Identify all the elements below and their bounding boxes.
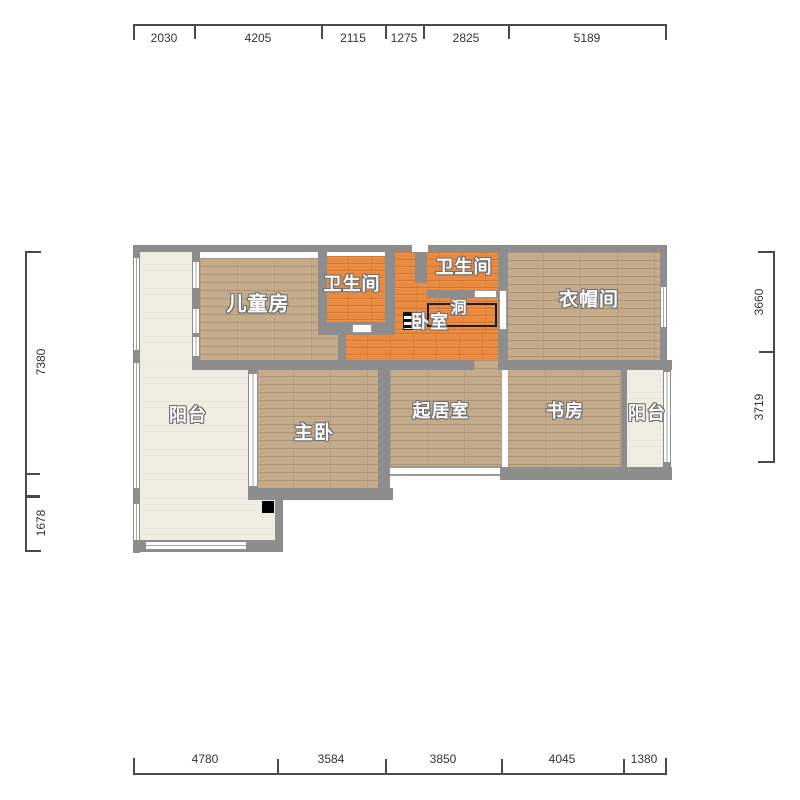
room-balcony-left-floor [140,252,194,370]
dim-bottom-5: 1380 [631,752,658,766]
dim-tick [508,24,510,39]
window-left-1 [134,258,139,350]
wall-master-living [378,360,390,500]
dim-bottom-4: 4045 [549,752,576,766]
window-balcony-children-2 [193,309,199,333]
room-bedroom-corridor-floor [344,333,502,362]
window-living-bottom [390,466,502,476]
room-label-master: 主卧 [294,418,334,445]
window-balcony-children-1 [193,262,199,288]
wall-top-opening [412,245,428,252]
room-balcony-left-floor [140,498,277,542]
window-left-2 [134,363,139,488]
window-balcony-master [249,374,257,486]
dim-tick [665,24,667,40]
window-balcony-bottom [146,542,246,549]
dim-tick [385,24,387,39]
dim-tick [133,24,135,40]
dim-top-4: 1275 [391,31,418,45]
dim-tick [385,759,387,775]
window-left-3 [134,504,139,540]
room-label-bath-left: 卫生间 [324,270,381,296]
wall-bottom-right [500,467,672,480]
wall-children-corridor [338,333,346,362]
dim-top-1: 2030 [151,31,178,45]
dim-tick [277,759,279,775]
dim-tick [25,251,41,253]
dim-top-3: 2115 [340,31,366,45]
dim-left-1: 7380 [34,349,48,376]
wall-study-balcony [621,365,627,470]
wall-bath-left-bedroom [385,252,395,335]
dim-tick [623,759,625,775]
room-label-study: 书房 [546,397,584,423]
dim-tick [321,24,323,39]
dim-bottom-2: 3584 [318,752,345,766]
window-balcony-children-3 [193,337,199,356]
window-cloakroom [661,287,666,327]
wall-top [133,245,667,252]
dim-top-2: 4205 [245,31,272,45]
door-bedroom-cloakroom [499,290,507,330]
dim-tick [665,758,667,775]
room-label-balcony-right: 阳台 [628,399,666,425]
dim-tick [25,550,41,552]
floor-plan-canvas: 2030 4205 2115 1275 2825 5189 4780 3584 … [0,0,800,800]
dim-bottom-3: 3850 [430,752,457,766]
wall-middle-horizontal [192,360,672,370]
dim-left-2: 1678 [34,510,48,537]
room-label-children: 儿童房 [227,288,290,317]
wall-balcony-lower-right [275,497,283,545]
dim-bottom-1: 4780 [192,752,219,766]
dim-top-6: 5189 [574,31,601,45]
dim-tick [759,351,775,353]
room-balcony-left-floor [140,365,248,502]
room-label-cloakroom: 衣帽间 [559,285,619,312]
room-label-bath-right: 卫生间 [436,253,493,279]
dim-right-1: 3660 [752,289,766,316]
dim-line-bottom [133,773,667,775]
room-label-balcony-left: 阳台 [169,401,207,427]
door-opening-living [474,360,498,370]
room-label-hole: 洞 [450,294,467,318]
wall-bath-right-left [415,252,427,283]
door-bath-left [352,324,372,333]
dim-line-top [133,24,667,26]
room-label-living: 起居室 [413,397,470,423]
dim-line-left [25,252,27,552]
dim-line-right [773,252,775,463]
dim-tick [758,461,775,463]
dim-right-2: 3719 [752,394,766,421]
room-label-bedroom: 卧室 [411,308,449,334]
dim-tick [133,758,135,775]
door-bath-right [474,290,497,298]
dim-tick [25,495,40,498]
dim-tick [194,24,196,39]
dim-tick [423,24,425,39]
wall-master-bottom [248,488,393,500]
dim-tick [25,473,40,475]
dim-tick [501,759,503,775]
column-icon [262,501,274,513]
dim-top-5: 2825 [453,31,480,45]
dim-tick [758,251,775,253]
